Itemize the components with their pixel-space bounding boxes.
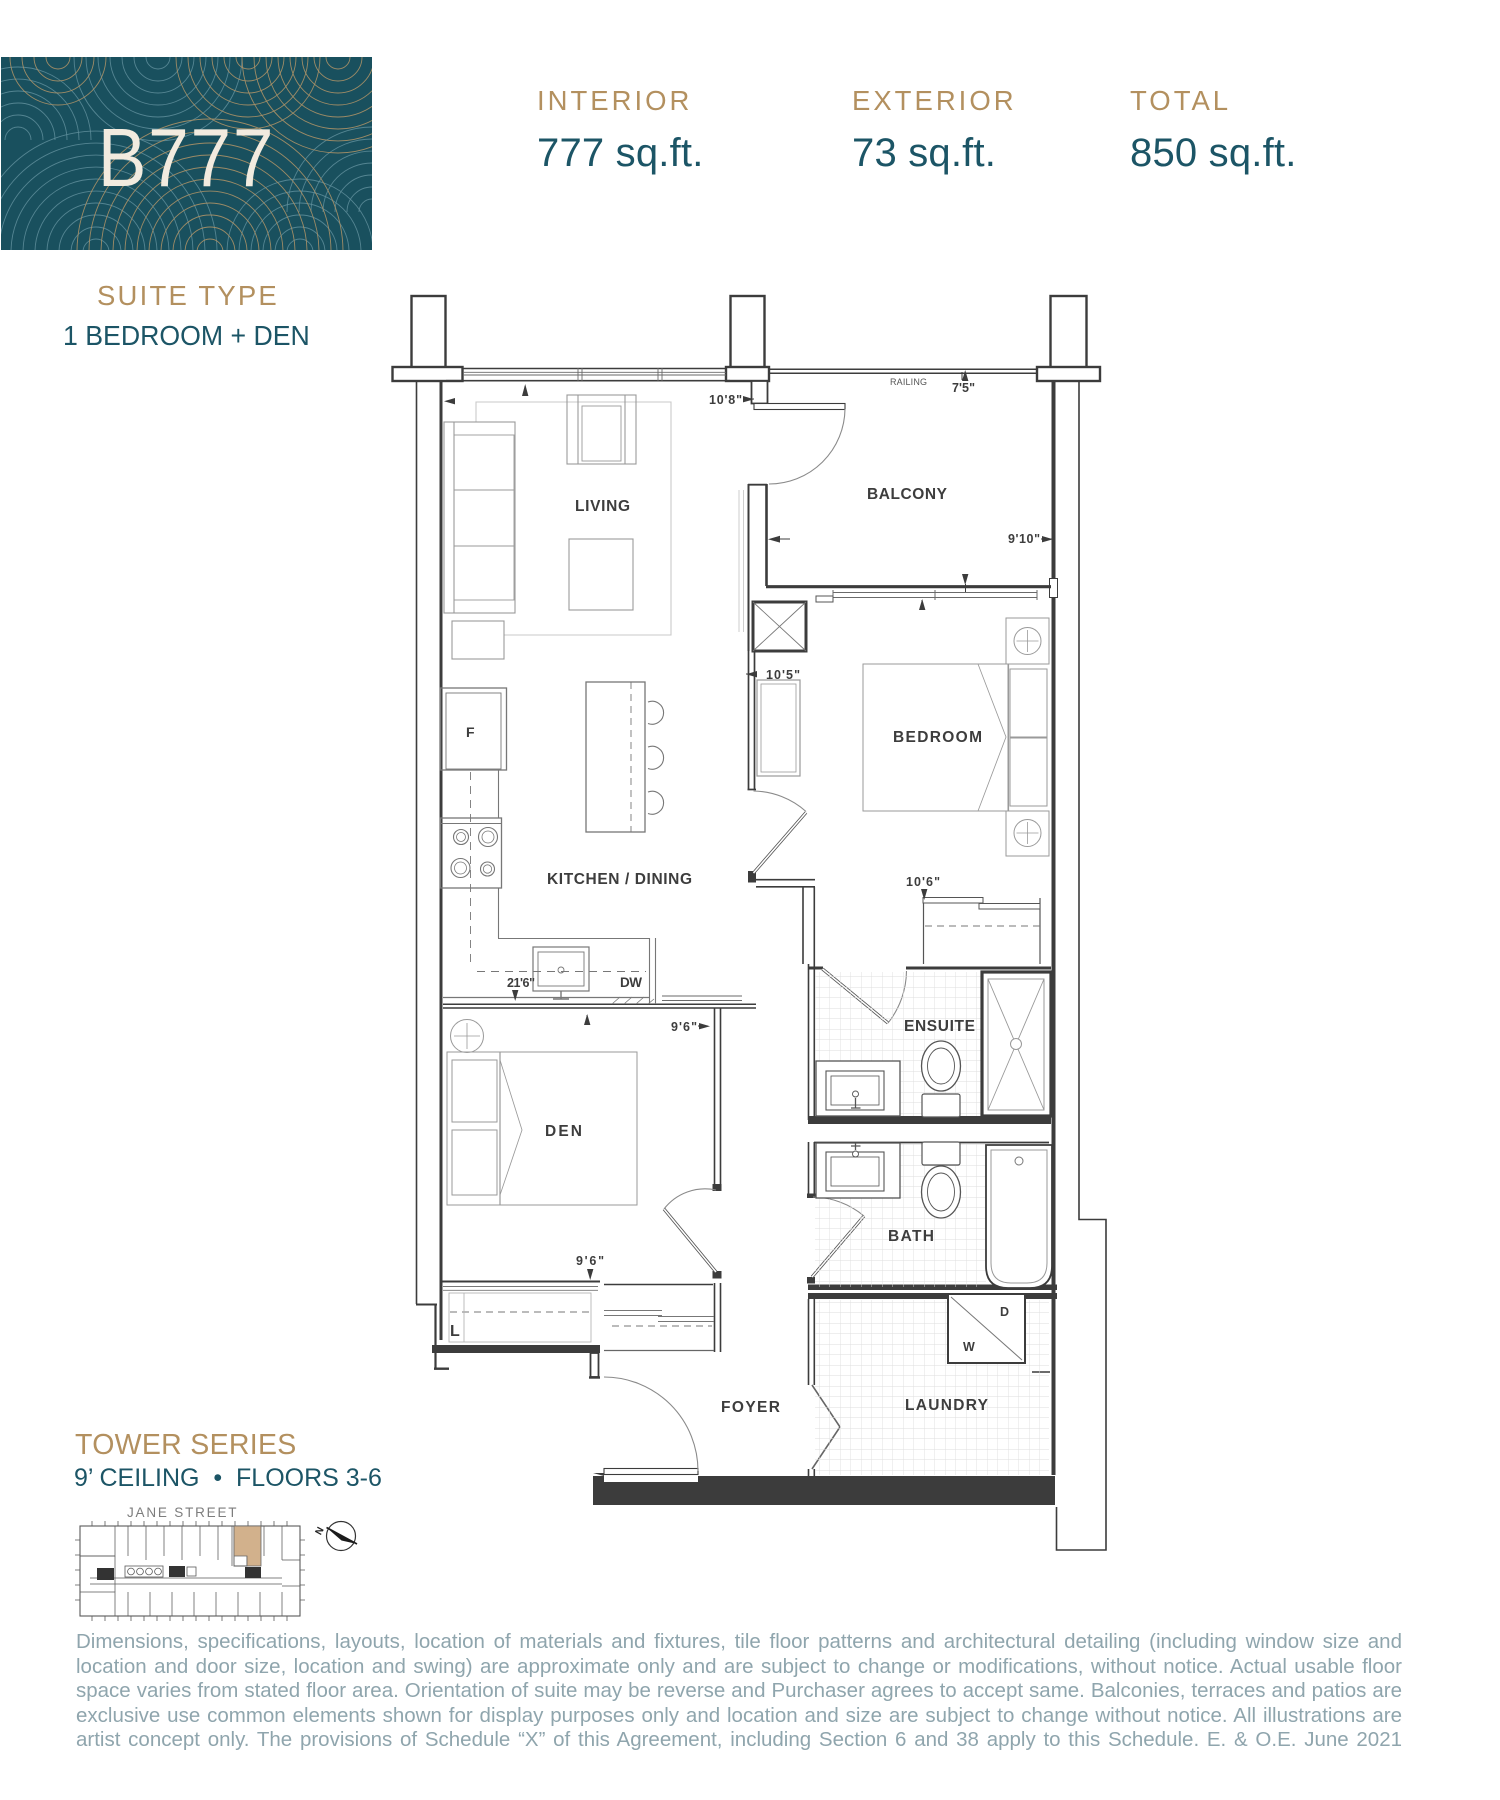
svg-text:10'5": 10'5" (766, 668, 800, 682)
svg-text:BATH: BATH (888, 1228, 934, 1245)
svg-text:10'6": 10'6" (906, 875, 940, 889)
svg-text:KITCHEN / DINING: KITCHEN / DINING (547, 871, 692, 888)
svg-text:F: F (466, 724, 475, 740)
svg-text:RAILING: RAILING (890, 377, 927, 387)
svg-text:N: N (314, 1526, 327, 1538)
svg-text:FOYER: FOYER (721, 1399, 780, 1416)
svg-text:21'6": 21'6" (507, 976, 535, 990)
svg-text:BALCONY: BALCONY (867, 486, 948, 503)
svg-text:D: D (1000, 1305, 1009, 1319)
svg-text:DEN: DEN (545, 1123, 582, 1140)
svg-text:LAUNDRY: LAUNDRY (905, 1397, 989, 1414)
svg-text:JANE STREET: JANE STREET (127, 1505, 238, 1520)
svg-text:LIVING: LIVING (575, 498, 630, 515)
svg-text:10'8": 10'8" (709, 393, 742, 407)
svg-text:L: L (450, 1323, 460, 1340)
svg-text:9'6": 9'6" (671, 1020, 697, 1034)
svg-text:ENSUITE: ENSUITE (904, 1018, 975, 1035)
svg-text:9'6": 9'6" (576, 1254, 604, 1268)
svg-text:BEDROOM: BEDROOM (893, 729, 982, 746)
svg-text:7'5": 7'5" (952, 381, 975, 395)
svg-text:9'10": 9'10" (1008, 532, 1040, 546)
svg-text:DW: DW (620, 975, 642, 990)
svg-text:W: W (963, 1340, 975, 1354)
